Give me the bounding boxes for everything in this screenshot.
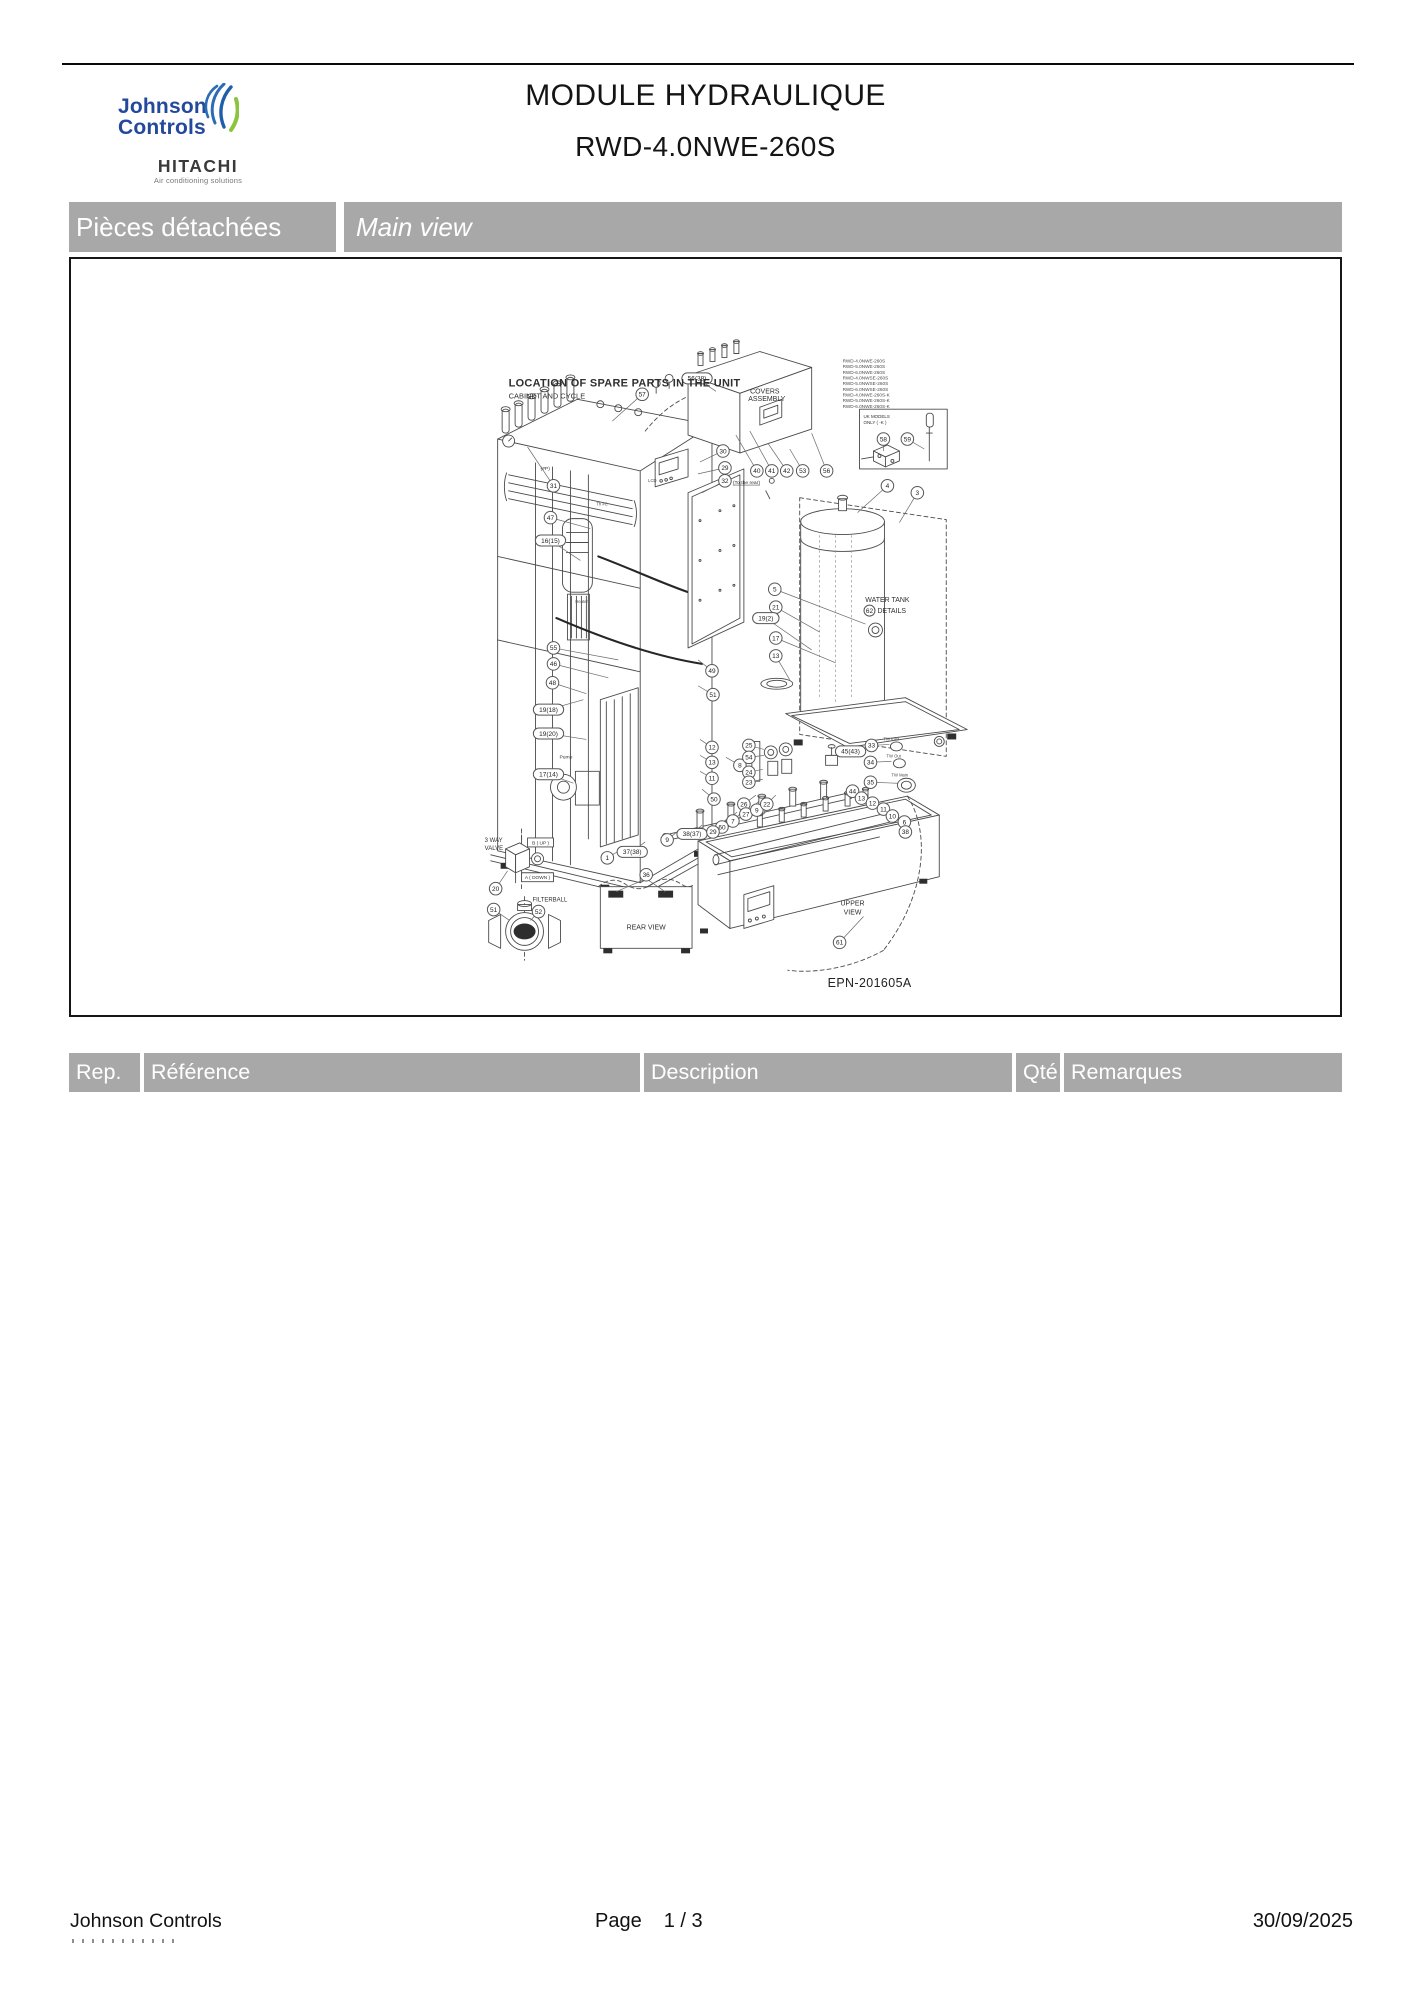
svg-text:55: 55 <box>550 645 558 652</box>
svg-text:57: 57 <box>639 392 647 399</box>
svg-text:11: 11 <box>880 806 887 813</box>
svg-text:25: 25 <box>745 743 753 750</box>
svg-text:9: 9 <box>755 807 759 814</box>
svg-text:16(15): 16(15) <box>541 538 560 545</box>
footer-page: Page1 / 3 <box>595 1910 703 1933</box>
rear-view-label: REAR VIEW <box>627 924 667 931</box>
tank-badge: 62 <box>866 608 874 615</box>
svg-text:10: 10 <box>889 813 897 820</box>
svg-text:27: 27 <box>742 811 750 818</box>
a-down-label: A ( DOWN ) <box>525 875 551 881</box>
svg-text:53: 53 <box>799 468 807 475</box>
svg-text:52: 52 <box>535 909 543 916</box>
col-remarks: Remarques <box>1064 1053 1342 1092</box>
svg-text:32: 32 <box>721 478 729 485</box>
svg-text:38(37): 38(37) <box>683 831 702 838</box>
svg-text:RWD-4.0NWE-260S-K: RWD-4.0NWE-260S-K <box>843 392 891 397</box>
three-way-label-2: VALVE <box>485 846 503 852</box>
uk-label-2: ONLY ( -K ) <box>864 420 887 425</box>
svg-text:11: 11 <box>709 776 716 783</box>
b-up-label: B ( UP ) <box>532 840 549 846</box>
diagram-svg: 57314716(15)55464819(18)19(20)17(14)56(3… <box>71 259 1340 1015</box>
svg-text:48: 48 <box>549 680 557 687</box>
to-rear-label: (To the rear) <box>733 480 760 486</box>
section-view-label: Main view <box>344 202 1342 252</box>
svg-text:51: 51 <box>490 907 498 914</box>
tw-inlet-label: TW Inlet <box>883 736 899 741</box>
svg-text:47: 47 <box>547 515 555 522</box>
col-qty: Qté <box>1016 1053 1060 1092</box>
svg-text:3: 3 <box>916 490 920 497</box>
cabinet-drawing <box>491 374 744 896</box>
svg-text:34: 34 <box>867 760 875 767</box>
footer-page-number: 1 / 3 <box>664 1910 703 1932</box>
svg-text:13: 13 <box>708 760 716 767</box>
lcd-label: LCD <box>648 478 656 483</box>
svg-text:19(18): 19(18) <box>539 707 558 714</box>
svg-text:31: 31 <box>550 483 558 490</box>
svg-text:19(2): 19(2) <box>758 615 773 622</box>
svg-text:RWD-6.0NWE-260S: RWD-6.0NWE-260S <box>843 370 886 375</box>
document-page: Johnson Controls HITACHI Air conditionin… <box>0 0 1410 1993</box>
svg-text:12: 12 <box>708 745 716 752</box>
svg-text:RWD-6.0NWE-260S-K: RWD-6.0NWE-260S-K <box>843 404 891 409</box>
svg-text:50: 50 <box>710 796 718 803</box>
svg-text:58: 58 <box>880 436 888 443</box>
three-way-label-1: 3 WAY <box>485 838 503 844</box>
svg-text:22: 22 <box>763 801 771 808</box>
tank-label-1: WATER TANK <box>865 597 910 604</box>
diagram-frame: 57314716(15)55464819(18)19(20)17(14)56(3… <box>69 257 1342 1017</box>
svg-text:8: 8 <box>738 763 742 770</box>
svg-text:RWD-5.0NWE-260S-K: RWD-5.0NWE-260S-K <box>843 398 891 403</box>
svg-text:29: 29 <box>709 829 717 836</box>
svg-text:42: 42 <box>783 468 791 475</box>
pump-label: Pump <box>559 754 572 760</box>
svg-text:40: 40 <box>753 468 761 475</box>
svg-text:51: 51 <box>709 692 717 699</box>
svg-text:7: 7 <box>731 818 735 825</box>
svg-text:9: 9 <box>665 837 669 844</box>
footer-clipped-line <box>72 1939 176 1943</box>
tw-main-label: TW Main <box>891 772 908 777</box>
svg-text:56: 56 <box>823 468 831 475</box>
filterball-label: FILTERBALL <box>533 898 568 904</box>
col-description: Description <box>644 1053 1012 1092</box>
covers-label-2: ASSEMBLY <box>748 396 785 403</box>
svg-text:26: 26 <box>740 801 748 808</box>
svg-text:17: 17 <box>772 635 780 642</box>
svg-text:13: 13 <box>772 653 780 660</box>
col-rep: Rep. <box>69 1053 140 1092</box>
footer-date: 30/09/2025 <box>1253 1910 1353 1933</box>
svg-text:49: 49 <box>708 668 716 675</box>
parts-table-header: Rep. Référence Description Qté Remarques <box>69 1053 1342 1092</box>
svg-text:37(38): 37(38) <box>623 849 642 856</box>
col-reference: Référence <box>144 1053 640 1092</box>
svg-text:45(43): 45(43) <box>841 749 860 756</box>
svg-text:1: 1 <box>606 855 610 862</box>
svg-text:RWD-4.0NWE-260S: RWD-4.0NWE-260S <box>843 358 886 363</box>
svg-text:17(14): 17(14) <box>539 772 558 779</box>
svg-text:RWD-5.0NWE-260S: RWD-5.0NWE-260S <box>843 364 886 369</box>
drawing-number: EPN-201605A <box>828 976 912 990</box>
top-rule <box>62 63 1354 65</box>
covers-label-1: COVERS <box>750 388 780 395</box>
svg-text:41: 41 <box>768 468 776 475</box>
svg-text:44: 44 <box>849 788 857 795</box>
svg-text:54: 54 <box>745 755 753 762</box>
svg-text:RWD-5.0NWSE-260S: RWD-5.0NWSE-260S <box>843 381 889 386</box>
svg-text:RWD-4.0NWSE-260S: RWD-4.0NWSE-260S <box>843 375 889 380</box>
svg-text:5: 5 <box>773 587 777 594</box>
svg-text:13: 13 <box>858 795 866 802</box>
svg-text:19(20): 19(20) <box>539 731 558 738</box>
tw-out-label: TW Out <box>886 753 901 758</box>
svg-text:12: 12 <box>869 800 877 807</box>
diagram-subtitle: CABINET AND CYCLE <box>509 391 586 400</box>
diagram-title: LOCATION OF SPARE PARTS IN THE UNIT <box>509 377 741 389</box>
hash-p-label: (#P) <box>541 466 551 472</box>
svg-text:29: 29 <box>721 465 729 472</box>
svg-text:30: 30 <box>719 448 727 455</box>
th-c-label: Th #C <box>596 502 607 507</box>
svg-text:38: 38 <box>902 829 910 836</box>
svg-text:23: 23 <box>745 780 753 787</box>
footer-page-label: Page <box>595 1910 642 1932</box>
upper-view-label-2: VIEW <box>844 910 862 917</box>
water-tank-drawing <box>761 495 967 756</box>
svg-text:46: 46 <box>550 661 558 668</box>
page-subtitle: RWD-4.0NWE-260S <box>69 131 1342 163</box>
svg-text:20: 20 <box>492 886 500 893</box>
section-bar: Pièces détachées Main view <box>69 202 1342 252</box>
footer-company: Johnson Controls <box>70 1910 222 1933</box>
brand-tagline: Air conditioning solutions <box>138 176 258 185</box>
tank-label-2: DETAILS <box>877 608 906 615</box>
svg-text:33: 33 <box>868 743 876 750</box>
svg-text:61: 61 <box>836 940 844 947</box>
section-left-label: Pièces détachées <box>69 202 336 252</box>
heater-label: Heater <box>575 599 588 604</box>
svg-text:21: 21 <box>772 604 780 611</box>
page-title: MODULE HYDRAULIQUE <box>69 79 1342 113</box>
svg-text:36: 36 <box>643 872 651 879</box>
svg-text:59: 59 <box>904 436 912 443</box>
rear-view-drawing <box>598 879 694 953</box>
upper-view-label-1: UPPER <box>841 901 865 908</box>
model-list: RWD-4.0NWE-260SRWD-5.0NWE-260SRWD-6.0NWE… <box>843 358 891 408</box>
svg-text:35: 35 <box>867 780 875 787</box>
svg-text:4: 4 <box>886 483 890 490</box>
uk-label-1: UK MODELS <box>864 414 890 419</box>
svg-text:RWD-6.0NWSE-260S: RWD-6.0NWSE-260S <box>843 387 889 392</box>
